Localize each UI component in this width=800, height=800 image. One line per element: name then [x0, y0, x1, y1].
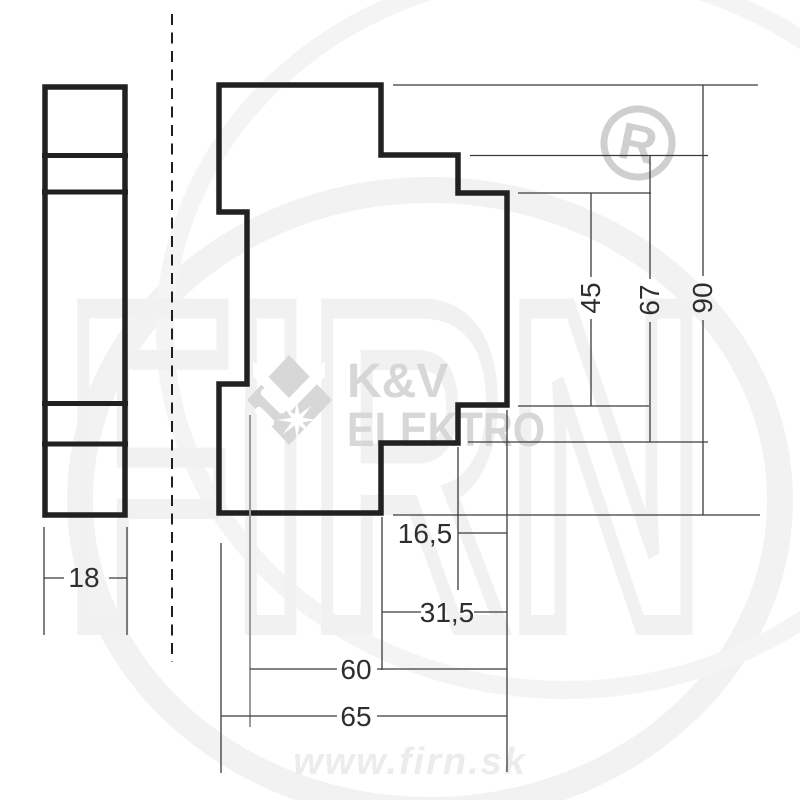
dim-label-60: 60 [340, 654, 371, 685]
watermark-layer: FIRN K&V ELEKTRO R www.firn.sk [65, 0, 800, 800]
watermark-big-text: FIRN [65, 210, 705, 723]
drawing-svg: FIRN K&V ELEKTRO R www.firn.sk [0, 0, 800, 800]
registered-trademark-icon: R [598, 103, 679, 184]
dim-label-18: 18 [68, 562, 99, 593]
dim-label-65: 65 [340, 701, 371, 732]
watermark-brand-line2: ELEKTRO [347, 404, 545, 457]
watermark-brand-line1: K&V [347, 355, 448, 408]
dim-label-16-5: 16,5 [398, 518, 453, 549]
dim-label-45: 45 [575, 282, 606, 313]
watermark-url: www.firn.sk [293, 741, 527, 783]
svg-text:R: R [613, 112, 662, 177]
dimension-drawing-page: FIRN K&V ELEKTRO R www.firn.sk [0, 0, 800, 800]
dim-label-31-5: 31,5 [420, 597, 475, 628]
dim-label-67: 67 [634, 284, 665, 315]
dim-label-90: 90 [687, 282, 718, 313]
